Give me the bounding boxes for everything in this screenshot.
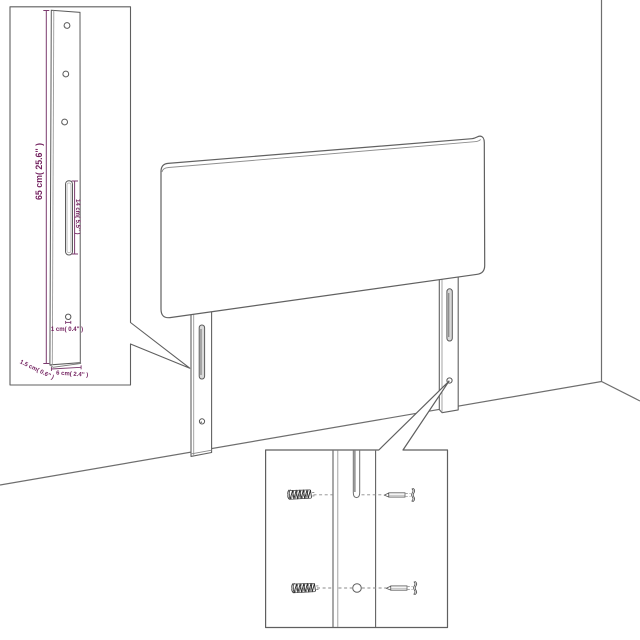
svg-text:14 cm( 5.5'' ): 14 cm( 5.5'' ) [74,199,80,235]
svg-text:65 cm( 25.6'' ): 65 cm( 25.6'' ) [34,143,44,200]
svg-text:1 cm( 0.4'' ): 1 cm( 0.4'' ) [51,327,83,333]
